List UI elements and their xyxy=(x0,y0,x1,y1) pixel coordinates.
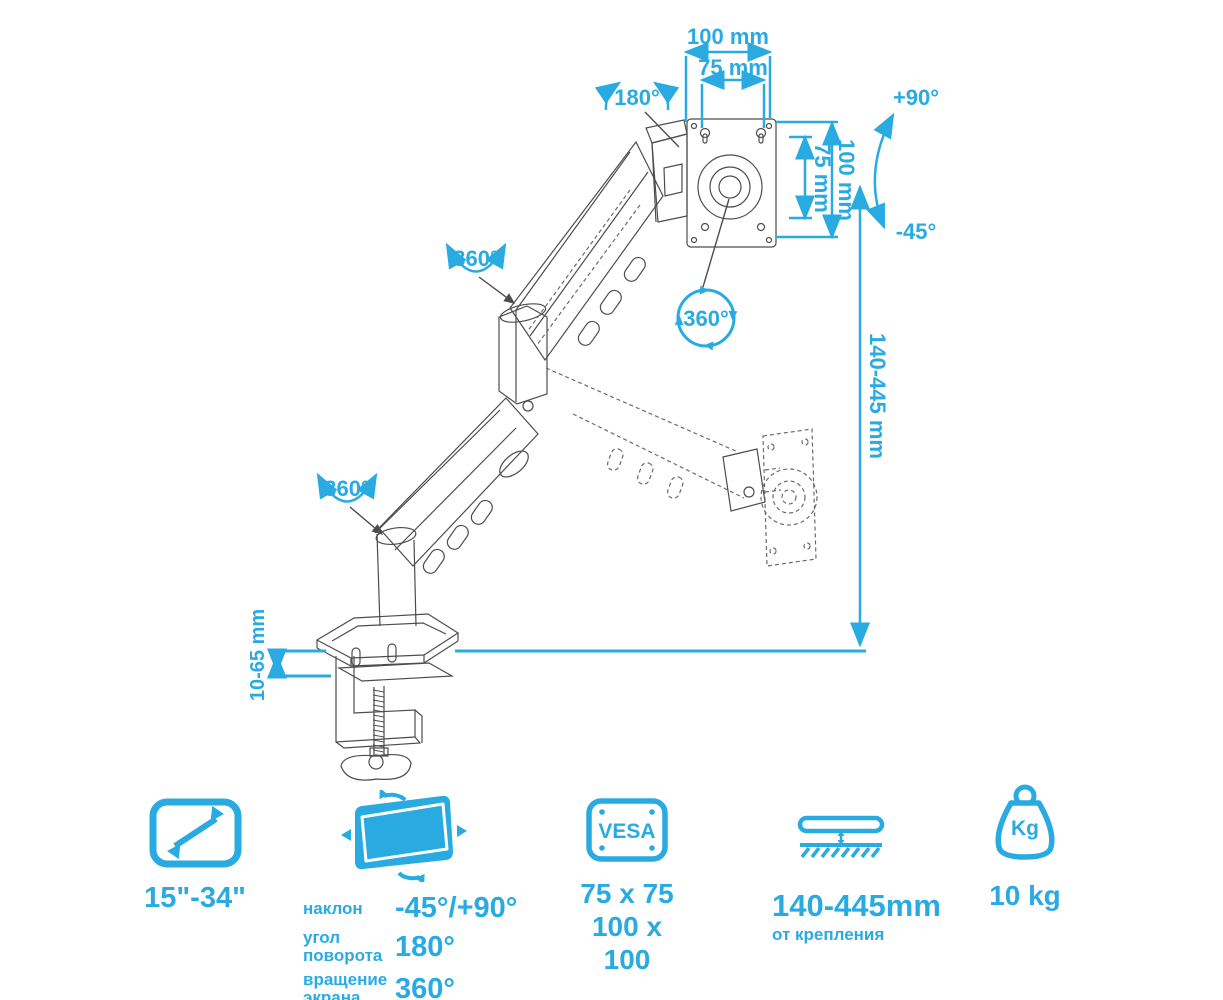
angles-row-value: 360° xyxy=(395,975,523,1000)
kg-weight-icon: Kg xyxy=(975,783,1075,871)
screen-size-value: 15"-34" xyxy=(140,883,250,915)
spec-weight: Kg 10 kg xyxy=(975,783,1075,912)
screen-tilt-icon xyxy=(339,790,469,882)
angles-row-label: вращение экрана xyxy=(303,971,395,1000)
angles-table: наклон -45°/+90° угол поворота 180° вращ… xyxy=(303,894,523,1000)
vesa-icon-text: VESA xyxy=(598,820,655,843)
desk-height-icon xyxy=(797,815,885,861)
spec-vesa: VESA 75 x 75 100 x 100 xyxy=(577,797,677,976)
height-range-sub: от крепления xyxy=(772,926,947,945)
angles-row-value: -45°/+90° xyxy=(395,894,523,923)
weight-value: 10 kg xyxy=(975,881,1075,912)
vesa-plate-icon: VESA xyxy=(577,797,677,863)
kg-icon-text: Kg xyxy=(1011,817,1039,840)
angles-row-label: наклон xyxy=(303,900,395,918)
spec-height: 140-445mm от крепления xyxy=(772,800,947,945)
monitor-arm-spec-sheet: 100 mm 75 mm 75 mm 100 mm 180° +90° -45°… xyxy=(0,0,1223,1000)
height-range-value: 140-445mm xyxy=(772,889,947,923)
angles-row-value: 180° xyxy=(395,933,523,962)
vesa-size-100: 100 x 100 xyxy=(577,910,677,976)
angles-row-label: угол поворота xyxy=(303,929,395,965)
spec-icons-row: 15"-34" наклон -45°/+90° угол поворота 1… xyxy=(0,0,1223,1000)
vesa-size-75: 75 x 75 xyxy=(577,877,677,910)
spec-angles: наклон -45°/+90° угол поворота 180° вращ… xyxy=(303,790,523,1000)
spec-screen-size: 15"-34" xyxy=(140,797,250,915)
diagonal-screen-size-icon xyxy=(140,797,250,869)
